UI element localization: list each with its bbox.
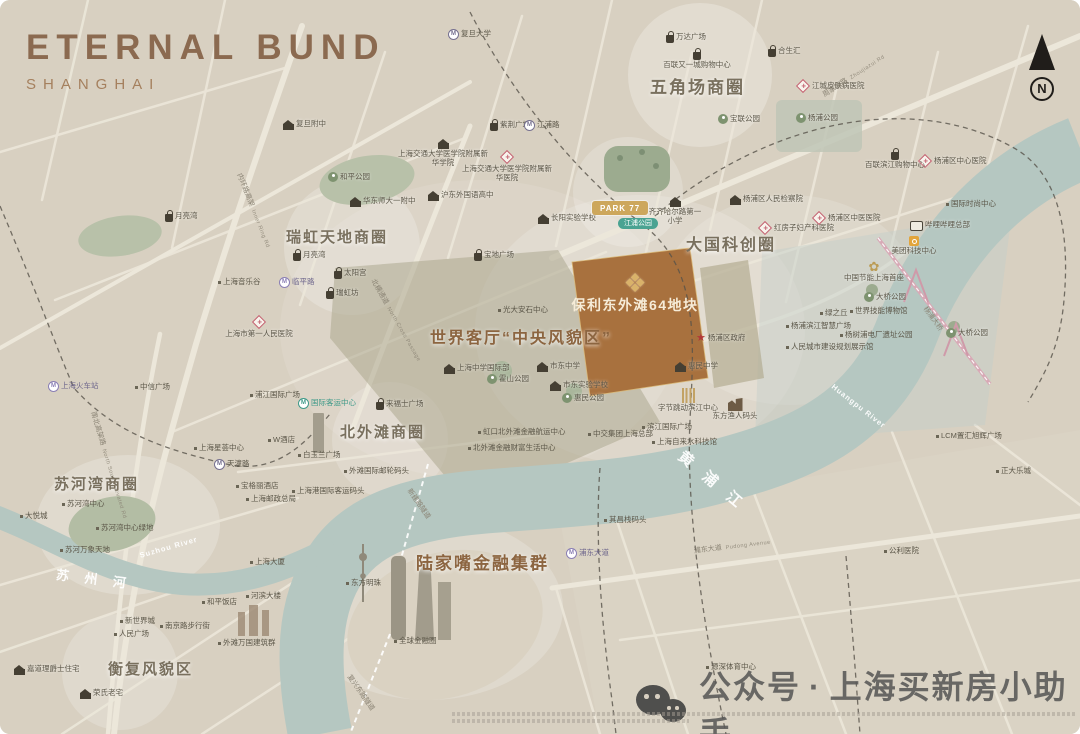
bullet-dot — [236, 485, 239, 488]
txt-text: 人民广场 — [119, 630, 149, 639]
district-label: 大国科创圈 — [686, 237, 776, 255]
metro-text: 天潼路 — [227, 460, 250, 469]
bullet-dot — [786, 325, 789, 328]
poi-label: 惠民中学 — [675, 361, 718, 372]
poi-label: 嘉道理爵士住宅 — [14, 664, 80, 675]
txt-label: 东方明珠 — [346, 579, 381, 588]
school-building-icon — [670, 201, 681, 207]
txt-text: 其昌栈码头 — [609, 516, 647, 525]
poi-text: 上海市第一人民医院 — [225, 330, 293, 339]
hospital-cross-icon — [758, 221, 772, 235]
poi-label: 惠民公园 — [562, 393, 604, 403]
txt-label: 外滩万国建筑群 — [218, 639, 276, 648]
poi-text: 华东师大一附中 — [363, 197, 416, 206]
txt-label: 新世界城 — [120, 617, 155, 626]
poi-label: 和平公园 — [328, 172, 370, 182]
park-tree-icon — [328, 172, 338, 182]
huangpu-river-label-en: Huangpu River — [829, 383, 887, 431]
hospital-cross-icon — [252, 315, 266, 329]
shopping-bag-icon — [490, 123, 498, 131]
poi-label: 合生汇 — [768, 45, 801, 57]
bullet-dot — [250, 561, 253, 564]
txt-text: 新世界城 — [125, 617, 155, 626]
bullet-dot — [246, 595, 249, 598]
metro-station-icon — [524, 120, 535, 131]
map-labels-layer: 复旦附中复旦大学紫荆广场万达广场百联又一城购物中心五角场商圈合生汇江城皮肤病医院… — [0, 0, 1080, 734]
school-building-icon — [550, 385, 561, 391]
hospital-cross-icon — [500, 150, 514, 164]
txt-label: 上海邮政总局 — [246, 495, 296, 504]
poi-label: 复旦附中 — [283, 119, 326, 130]
bullet-dot — [268, 439, 271, 442]
district-text: 苏河湾商圈 — [54, 476, 139, 493]
poi-label: 杨浦公园 — [796, 113, 838, 123]
poly-clover-logo-icon — [623, 270, 646, 296]
bullet-dot — [344, 470, 347, 473]
txt-text: 全球金融圈 — [399, 637, 437, 646]
district-label: 瑞虹天地商圈 — [286, 229, 388, 246]
txt-text: 河滨大楼 — [251, 592, 281, 601]
school-building-icon — [350, 201, 361, 207]
txt-text: 中信广场 — [140, 383, 170, 392]
compass: N — [1022, 34, 1062, 101]
bullet-dot — [135, 386, 138, 389]
txt-label: 河滨大楼 — [246, 592, 281, 601]
district-text: 北外滩商圈 — [340, 424, 425, 441]
metro-text: 国际客运中心 — [311, 399, 356, 408]
txt-label: 虹口北外滩金融航运中心 — [478, 428, 566, 437]
shopping-bag-icon — [293, 253, 301, 261]
txt-label: 正大乐城 — [996, 467, 1031, 476]
cecep-flower-logo-icon — [869, 260, 880, 273]
txt-label: 白玉兰广场 — [298, 451, 341, 460]
metro-station-icon — [48, 381, 59, 392]
road-label: 北横通道North Cross Passage — [369, 278, 423, 363]
bullet-dot — [114, 633, 117, 636]
txt-text: 南京路步行街 — [165, 622, 210, 631]
metro-label: 江浦路 — [524, 120, 560, 131]
park-tree-icon — [946, 328, 956, 338]
poi-text: 哔哩哔哩总部 — [925, 221, 970, 230]
txt-label: 南京路步行街 — [160, 622, 210, 631]
poi-label: 市东中学 — [537, 361, 580, 372]
school-building-icon — [428, 195, 439, 201]
hospital-cross-icon — [812, 211, 826, 225]
road-text: 浦东大道 — [694, 545, 723, 556]
poi-text: 杨浦区中医医院 — [828, 214, 881, 223]
compass-needle-icon — [1029, 34, 1055, 70]
txt-label: 苏河万象天地 — [60, 546, 110, 555]
txt-text: 上海大厦 — [255, 558, 285, 567]
poi-text: 东方渔人码头 — [713, 412, 758, 421]
poi-text: 市东中学 — [550, 362, 580, 371]
metro-label: 国际客运中心 — [298, 398, 356, 409]
bytedance-tower-icon — [682, 388, 695, 403]
poi-text: 大桥公园 — [876, 293, 906, 302]
poi-text: 杨浦公园 — [808, 114, 838, 123]
txt-text: LCM置汇旭辉广场 — [941, 432, 1002, 441]
poi-label: 中国节能上海首座 — [838, 260, 910, 283]
txt-text: 和平饭店 — [207, 598, 237, 607]
district-text: 大国科创圈 — [686, 237, 776, 255]
park77-badge-text: PARK 77 — [600, 204, 640, 213]
bullet-dot — [218, 281, 221, 284]
metro-station-icon — [279, 277, 290, 288]
poi-text: 大桥公园 — [958, 329, 988, 338]
road-label: 浦东大道Pudong Avenue — [694, 539, 772, 556]
bullet-dot — [20, 515, 23, 518]
bullet-dot — [120, 620, 123, 623]
road-text: 北横通道 — [369, 278, 390, 306]
bilibili-logo-icon — [910, 221, 923, 231]
poi-label: 大桥公园 — [946, 328, 988, 338]
txt-label: 外滩国际邮轮码头 — [344, 467, 409, 476]
bullet-dot — [996, 470, 999, 473]
school-building-icon — [283, 124, 294, 130]
txt-text: 杨树浦电厂遗址公园 — [845, 331, 913, 340]
park77-badge: PARK 77 — [592, 201, 648, 215]
park-tree-icon — [796, 113, 806, 123]
watermark-account-label: 公众号 — [699, 669, 801, 705]
metro-station-icon — [298, 398, 309, 409]
poi-label: 东方渔人码头 — [706, 398, 764, 421]
txt-label: 大悦城 — [20, 512, 48, 521]
poi-label: 沪东外国语高中 — [428, 190, 494, 201]
poi-label: 瑞虹坊 — [326, 287, 359, 299]
poi-label: 华东师大一附中 — [350, 196, 416, 207]
txt-label: 国际时尚中心 — [946, 200, 996, 209]
wharf-building-icon — [728, 398, 743, 411]
txt-label: 苏河湾中心 — [62, 500, 105, 509]
school-building-icon — [444, 368, 455, 374]
road-label: 复兴东路隧道 — [345, 674, 376, 713]
metro-text: 复旦大学 — [461, 30, 491, 39]
poi-text: 惠民中学 — [688, 362, 718, 371]
shopping-bag-icon — [165, 214, 173, 222]
school-building-icon — [80, 693, 91, 699]
map-title-main: ETERNAL BUND — [26, 28, 385, 68]
project-parcel-label: 保利东外滩64地块 — [565, 270, 705, 313]
metro-station-icon — [566, 548, 577, 559]
poi-label: 宝地广场 — [474, 249, 514, 261]
road-label-en: North Cross Passage — [385, 306, 421, 363]
poi-label: 太阳宫 — [334, 267, 367, 279]
park-tree-icon — [487, 374, 497, 384]
bullet-dot — [588, 433, 591, 436]
txt-text: 上海邮政总局 — [251, 495, 296, 504]
txt-text: 中交集团上海总部 — [593, 430, 653, 439]
bullet-dot — [96, 527, 99, 530]
metro-label: 浦东大道 — [566, 548, 609, 559]
poi-label: 上海交通大学医学院附属新华医院 — [462, 150, 552, 182]
shopping-bag-icon — [326, 291, 334, 299]
huangpu-river-label-en-text: Huangpu River — [829, 383, 887, 431]
poi-text: 月亮湾 — [175, 212, 198, 221]
txt-label: 人民广场 — [114, 630, 149, 639]
poi-label: 齐齐哈尔路第一小学 — [646, 196, 704, 225]
road-label-en: Inner Ring Rd — [250, 209, 271, 249]
poi-text: 合生汇 — [778, 47, 801, 56]
district-label: 苏河湾商圈 — [54, 476, 139, 493]
road-label: 内环路高架Inner Ring Rd — [234, 173, 271, 250]
poi-text: 齐齐哈尔路第一小学 — [646, 208, 704, 225]
bullet-dot — [298, 454, 301, 457]
poi-text: 百联滨江购物中心 — [865, 161, 925, 170]
map-canvas: 复旦附中复旦大学紫荆广场万达广场百联又一城购物中心五角场商圈合生汇江城皮肤病医院… — [0, 0, 1080, 734]
project-parcel-label-text: 保利东外滩64地块 — [571, 297, 698, 313]
park-tree-icon — [864, 292, 874, 302]
district-label: 陆家嘴金融集群 — [416, 554, 549, 574]
metro-text: 临平路 — [292, 278, 315, 287]
poi-text: 嘉道理爵士住宅 — [27, 665, 80, 674]
shopping-bag-icon — [768, 49, 776, 57]
poi-label: 宝联公园 — [718, 114, 760, 124]
txt-label: 全球金融圈 — [394, 637, 437, 646]
shopping-bag-icon — [474, 253, 482, 261]
bullet-dot — [202, 601, 205, 604]
txt-label: W酒店 — [268, 436, 295, 445]
shopping-bag-icon — [666, 35, 674, 43]
txt-label: 宝格丽酒店 — [236, 482, 279, 491]
poi-text: 霍山公园 — [499, 375, 529, 384]
poi-label: 上海市第一人民医院 — [220, 315, 298, 339]
txt-label: 杨树浦电厂遗址公园 — [840, 331, 913, 340]
txt-label: 浦江国际广场 — [250, 391, 300, 400]
txt-label: 杨浦滨江智慧广场 — [786, 322, 851, 331]
government-building-icon — [730, 199, 741, 205]
poi-label: 万达广场 — [666, 31, 706, 43]
txt-label: 上海自来水科技馆 — [652, 438, 717, 447]
district-label: 世界客厅“中央风貌区” — [430, 330, 612, 348]
school-building-icon — [538, 218, 549, 224]
bullet-dot — [946, 203, 949, 206]
poi-text: 沪东外国语高中 — [441, 191, 494, 200]
txt-text: 外滩万国建筑群 — [223, 639, 276, 648]
txt-text: 苏河湾中心绿地 — [101, 524, 154, 533]
poi-label: 来福士广场 — [376, 398, 424, 410]
poi-text: 月亮湾 — [303, 251, 326, 260]
poi-label: 大桥公园 — [864, 292, 906, 302]
bullet-dot — [60, 549, 63, 552]
poi-label: 百联又一城购物中心 — [655, 48, 739, 70]
poi-text: 来福士广场 — [386, 400, 424, 409]
park-tree-icon — [718, 114, 728, 124]
district-text: 世界客厅“中央风貌区” — [430, 330, 612, 348]
txt-text: W酒店 — [273, 436, 295, 445]
poi-label: 长阳实验学校 — [538, 213, 596, 224]
bullet-dot — [62, 503, 65, 506]
road-label: 杨浦大桥 — [921, 306, 944, 333]
district-label: 北外滩商圈 — [340, 424, 425, 441]
bullet-dot — [194, 447, 197, 450]
road-label-en: Zhoujiazui Rd — [849, 54, 886, 81]
metro-label: 上海火车站 — [48, 381, 99, 392]
school-building-icon — [675, 366, 686, 372]
bullet-dot — [884, 550, 887, 553]
shopping-bag-icon — [891, 152, 899, 160]
txt-text: 国际时尚中心 — [951, 200, 996, 209]
txt-text: 苏河湾中心 — [67, 500, 105, 509]
txt-label: 上海港国际客运码头 — [292, 487, 365, 496]
bullet-dot — [346, 582, 349, 585]
shopping-bag-icon — [693, 52, 701, 60]
shopping-bag-icon — [334, 271, 342, 279]
txt-label: 绿之丘 — [820, 309, 848, 318]
poi-text: 长阳实验学校 — [551, 214, 596, 223]
map-title-sub: SHANGHAI — [26, 76, 385, 93]
poi-label: 杨浦区政府 — [696, 333, 745, 344]
district-label: 五角场商圈 — [650, 78, 745, 98]
txt-text: 外滩国际邮轮码头 — [349, 467, 409, 476]
poi-label: 月亮湾 — [165, 210, 198, 222]
txt-text: 苏河万象天地 — [65, 546, 110, 555]
poi-text: 杨浦区人民检察院 — [743, 195, 803, 204]
metro-label: 临平路 — [279, 277, 315, 288]
poi-text: 瑞虹坊 — [336, 289, 359, 298]
metro-label: 复旦大学 — [448, 29, 491, 40]
poi-text: 美团科技中心 — [892, 247, 937, 256]
bullet-dot — [394, 640, 397, 643]
district-text: 衡复风貌区 — [108, 661, 193, 678]
poi-label: 杨浦区人民检察院 — [730, 194, 803, 205]
bullet-dot — [218, 642, 221, 645]
district-label: 衡复风貌区 — [108, 661, 193, 678]
district-text: 陆家嘴金融集群 — [416, 554, 549, 574]
meituan-logo-icon — [909, 236, 919, 246]
government-star-icon — [696, 333, 706, 344]
road-text: 内环路高架 — [234, 173, 255, 208]
poi-label: 哔哩哔哩总部 — [910, 219, 970, 231]
bullet-dot — [604, 519, 607, 522]
txt-text: 虹口北外滩金融航运中心 — [483, 428, 566, 437]
bullet-dot — [850, 310, 853, 313]
poi-text: 中国节能上海首座 — [844, 274, 904, 283]
bullet-dot — [652, 441, 655, 444]
poi-text: 上海中学国际部 — [457, 364, 510, 373]
bullet-dot — [292, 490, 295, 493]
district-text: 瑞虹天地商圈 — [286, 229, 388, 246]
poi-text: 杨浦区中心医院 — [934, 157, 987, 166]
metro-label: 天潼路 — [214, 459, 250, 470]
poi-label: 杨浦区中医医院 — [812, 211, 881, 225]
poi-label: 美团科技中心 — [884, 236, 944, 256]
metro-text: 江浦路 — [537, 121, 560, 130]
poi-label: 百联滨江购物中心 — [864, 148, 926, 170]
txt-text: 杨浦滨江智慧广场 — [791, 322, 851, 331]
bullet-dot — [160, 625, 163, 628]
road-label: 新建路隧道 — [405, 488, 432, 521]
bullet-dot — [498, 309, 501, 312]
txt-text: 东方明珠 — [351, 579, 381, 588]
metro-station-icon — [448, 29, 459, 40]
txt-text: 上海港国际客运码头 — [297, 487, 365, 496]
txt-label: 公利医院 — [884, 547, 919, 556]
road-text: 新建路隧道 — [405, 488, 432, 521]
txt-text: 白玉兰广场 — [303, 451, 341, 460]
txt-label: 上海星荟中心 — [194, 444, 244, 453]
road-text: 南北高架路 — [88, 411, 106, 447]
txt-text: 宝格丽酒店 — [241, 482, 279, 491]
poi-label: 杨浦区中心医院 — [918, 154, 987, 168]
poi-label: 市东实验学校 — [550, 380, 608, 391]
txt-label: 人民城市建设规划展示馆 — [786, 343, 874, 352]
txt-text: 绿之丘 — [825, 309, 848, 318]
school-building-icon — [438, 143, 449, 149]
poi-label: 荣氏老宅 — [80, 688, 123, 699]
huangpu-river-label-text: 黄 浦 江 — [674, 448, 749, 515]
txt-text: 光大安石中心 — [503, 306, 548, 315]
suzhou-river-label-en-text: Suzhou River — [139, 536, 199, 561]
poi-text: 和平公园 — [340, 173, 370, 182]
metro-station-icon — [214, 459, 225, 470]
district-text: 五角场商圈 — [650, 78, 745, 98]
bullet-dot — [246, 498, 249, 501]
txt-text: 人民城市建设规划展示馆 — [791, 343, 874, 352]
txt-label: 上海音乐谷 — [218, 278, 261, 287]
compass-north-label: N — [1030, 77, 1054, 101]
disclaimer-text — [452, 712, 1076, 726]
poi-text: 百联又一城购物中心 — [663, 61, 731, 70]
metro-text: 上海火车站 — [61, 382, 99, 391]
bullet-dot — [478, 431, 481, 434]
bullet-dot — [250, 394, 253, 397]
poi-label: 月亮湾 — [293, 249, 326, 261]
metro-text: 浦东大道 — [579, 549, 609, 558]
poi-text: 太阳宫 — [344, 269, 367, 278]
txt-text: 浦江国际广场 — [255, 391, 300, 400]
txt-label: 其昌栈码头 — [604, 516, 647, 525]
road-label-en: Pudong Avenue — [725, 539, 771, 551]
txt-text: 上海星荟中心 — [199, 444, 244, 453]
txt-text: 上海自来水科技馆 — [657, 438, 717, 447]
hospital-cross-icon — [796, 79, 810, 93]
school-building-icon — [14, 669, 25, 675]
txt-text: 公利医院 — [889, 547, 919, 556]
txt-label: 中交集团上海总部 — [588, 430, 653, 439]
bullet-dot — [786, 346, 789, 349]
school-building-icon — [537, 366, 548, 372]
bullet-dot — [468, 447, 471, 450]
bullet-dot — [936, 435, 939, 438]
txt-text: 大悦城 — [25, 512, 48, 521]
txt-label: 苏河湾中心绿地 — [96, 524, 154, 533]
park-tree-icon — [562, 393, 572, 403]
txt-label: 和平饭店 — [202, 598, 237, 607]
shopping-bag-icon — [376, 402, 384, 410]
txt-label: 世界技能博物馆 — [850, 307, 908, 316]
poi-text: 宝联公园 — [730, 115, 760, 124]
txt-text: 滨江国际广场 — [647, 423, 692, 432]
suzhou-river-label-text: 苏 州 河 — [55, 568, 132, 592]
txt-text: 北外滩金融财富生活中心 — [473, 444, 556, 453]
suzhou-river-label-en: Suzhou River — [139, 536, 199, 561]
poi-text: 万达广场 — [676, 33, 706, 42]
map-title: ETERNAL BUND SHANGHAI — [26, 28, 385, 93]
watermark-separator: · — [809, 669, 822, 705]
road-text: 复兴东路隧道 — [345, 674, 376, 713]
txt-label: 光大安石中心 — [498, 306, 548, 315]
bullet-dot — [840, 334, 843, 337]
poi-text: 杨浦区政府 — [708, 334, 746, 343]
txt-text: 上海音乐谷 — [223, 278, 261, 287]
txt-label: 北外滩金融财富生活中心 — [468, 444, 556, 453]
txt-label: 中信广场 — [135, 383, 170, 392]
bullet-dot — [820, 312, 823, 315]
suzhou-river-label: 苏 州 河 — [55, 568, 132, 592]
txt-label: 上海大厦 — [250, 558, 285, 567]
txt-label: LCM置汇旭辉广场 — [936, 432, 1002, 441]
poi-text: 宝地广场 — [484, 251, 514, 260]
